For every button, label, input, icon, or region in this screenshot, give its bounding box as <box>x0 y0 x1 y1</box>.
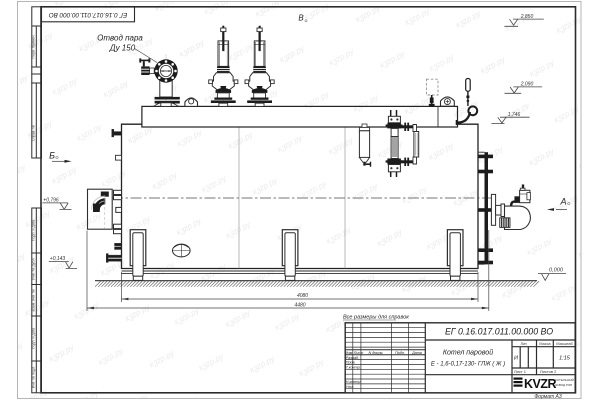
svg-text:Е - 1,6-0,17-130- ГЛЖ ( Ж ): Е - 1,6-0,17-130- ГЛЖ ( Ж ) <box>431 362 505 368</box>
svg-text:Инв. № подл.: Инв. № подл. <box>32 366 36 388</box>
svg-text:Справ. №: Справ. № <box>32 125 36 141</box>
svg-text:4480: 4480 <box>294 302 305 308</box>
svg-text:KVZR: KVZR <box>524 377 557 391</box>
svg-text:Дата: Дата <box>411 351 422 355</box>
svg-text:Масштаб: Масштаб <box>556 342 573 346</box>
svg-text:КОТЕЛЬНЫЙ: КОТЕЛЬНЫЙ <box>555 378 574 382</box>
svg-text:Подп. и дата: Подп. и дата <box>32 328 36 349</box>
svg-text:+0,143: +0,143 <box>50 256 66 262</box>
svg-text:Отвод пара: Отвод пара <box>97 34 143 43</box>
svg-text:0,000: 0,000 <box>549 268 564 274</box>
svg-text:Лист 1: Лист 1 <box>514 369 527 374</box>
svg-text:Листов 2: Листов 2 <box>540 369 557 374</box>
svg-text:Лит.: Лит. <box>521 342 528 346</box>
svg-text:1:15: 1:15 <box>559 356 571 362</box>
svg-text:Изм: Изм <box>346 351 353 355</box>
svg-text:4080: 4080 <box>297 293 308 299</box>
svg-text:Разраб.: Разраб. <box>346 356 359 360</box>
svg-text:Все размеры для справок: Все размеры для справок <box>343 315 409 321</box>
svg-text:ЗАВОД РЭП: ЗАВОД РЭП <box>555 383 572 387</box>
svg-text:Утв.: Утв. <box>346 385 354 389</box>
svg-text:Взам. инв. №: Взам. инв. № <box>32 289 36 311</box>
svg-text:+0,796: +0,796 <box>43 198 59 204</box>
svg-text:Т.контр.: Т.контр. <box>346 366 361 370</box>
svg-text:Перв. примен.: Перв. примен. <box>32 35 36 59</box>
svg-text:ЕГ 0.16.017.011.00.000 ВО: ЕГ 0.16.017.011.00.000 ВО <box>49 11 128 18</box>
svg-text:Пров.: Пров. <box>346 361 356 365</box>
svg-text:Инв. № дубл.: Инв. № дубл. <box>32 258 36 280</box>
svg-text:И: И <box>514 356 518 362</box>
svg-text:N докум.: N докум. <box>369 351 384 355</box>
svg-text:Лист: Лист <box>353 351 364 355</box>
svg-text:Подп.: Подп. <box>395 351 405 355</box>
svg-text:Формат А3: Формат А3 <box>534 394 562 400</box>
svg-text:ЕГ 0.16.017.011.00.000 ВО: ЕГ 0.16.017.011.00.000 ВО <box>445 327 553 337</box>
svg-text:Подп. и дата: Подп. и дата <box>32 220 36 241</box>
svg-text:2,850: 2,850 <box>520 14 534 20</box>
svg-text:2,090: 2,090 <box>520 82 534 88</box>
svg-text:1,746: 1,746 <box>508 112 521 118</box>
svg-text:Н.контр.: Н.контр. <box>346 380 362 384</box>
svg-text:Ду 150: Ду 150 <box>109 44 136 53</box>
svg-text:Б: Б <box>49 151 55 161</box>
svg-text:Котел паровой: Котел паровой <box>443 349 493 357</box>
svg-text:Масса: Масса <box>539 342 551 346</box>
svg-text:А: А <box>559 197 566 207</box>
svg-text:В: В <box>298 14 304 23</box>
